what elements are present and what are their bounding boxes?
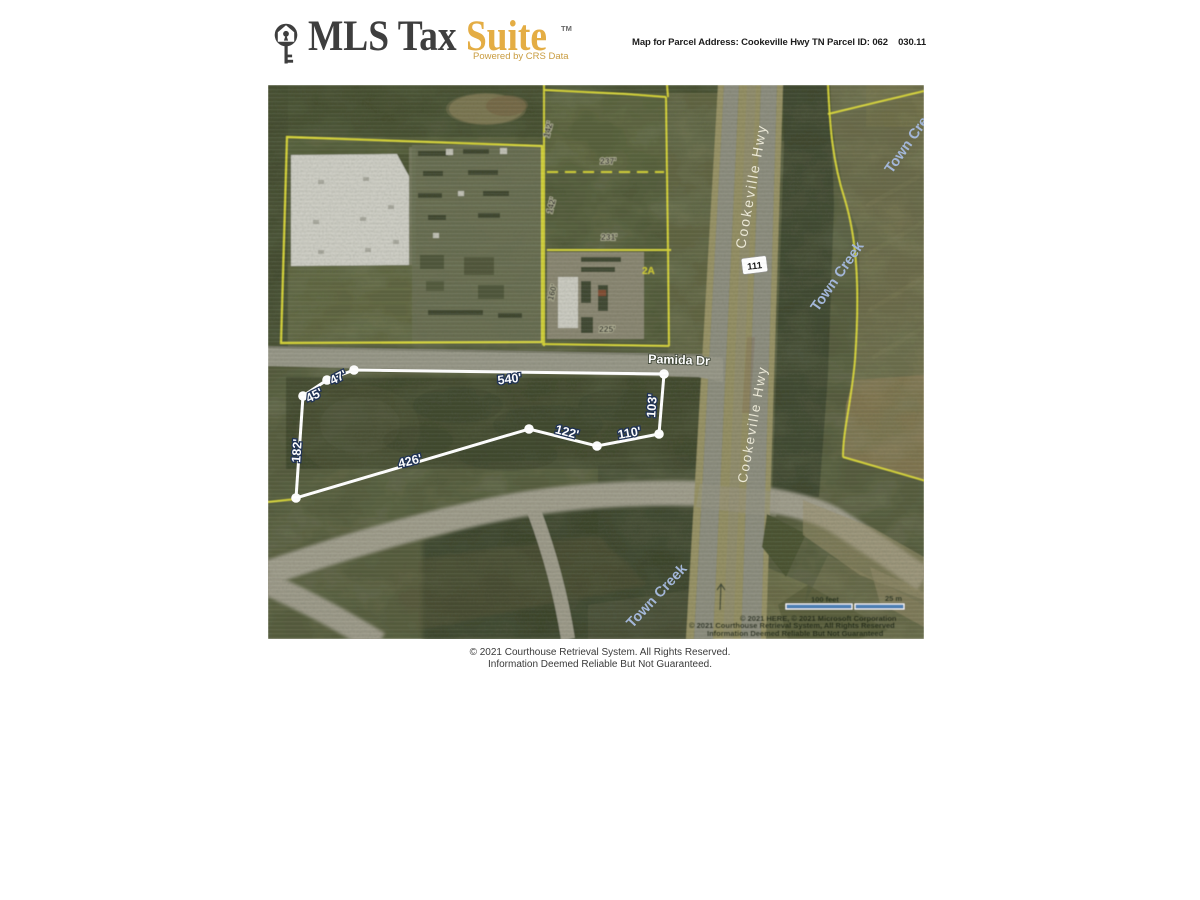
svg-text:Powered by CRS Data: Powered by CRS Data <box>473 51 569 62</box>
svg-text:TM: TM <box>561 24 572 33</box>
svg-text:237': 237' <box>600 156 616 166</box>
svg-text:Information Deemed Reliable Bu: Information Deemed Reliable But Not Guar… <box>707 629 884 638</box>
svg-text:25 m: 25 m <box>885 594 902 603</box>
svg-text:540': 540' <box>497 371 522 388</box>
svg-text:2A: 2A <box>642 266 655 277</box>
svg-text:111: 111 <box>747 260 764 273</box>
svg-text:Pamida Dr: Pamida Dr <box>648 352 710 368</box>
svg-text:103': 103' <box>644 393 660 418</box>
svg-text:231': 231' <box>601 232 617 242</box>
svg-text:100 feet: 100 feet <box>811 595 839 604</box>
svg-text:225': 225' <box>599 324 615 334</box>
svg-text:182': 182' <box>289 438 305 463</box>
